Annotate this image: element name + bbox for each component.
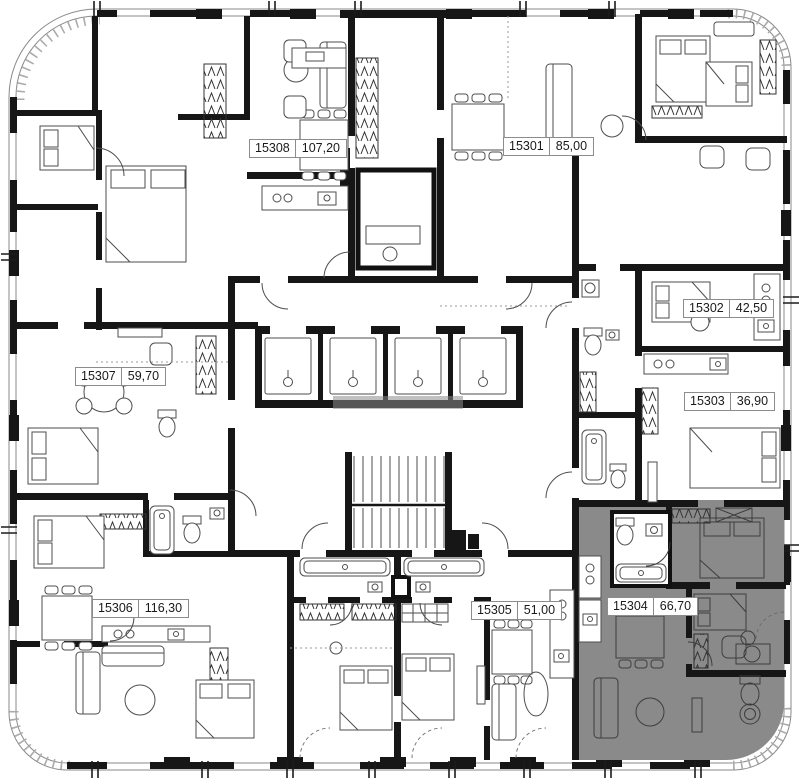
floor-plan: 15308 107,20 15301 85,00 15302 42,50 153…	[0, 0, 800, 779]
apartment-tag-15308[interactable]: 15308 107,20	[249, 139, 347, 158]
apartment-number: 15302	[684, 300, 730, 317]
apartment-tag-15305[interactable]: 15305 51,00	[471, 601, 562, 620]
apartment-number: 15301	[504, 138, 550, 155]
apartment-area: 116,30	[139, 600, 188, 617]
stairs-icon	[352, 456, 445, 548]
apartment-area: 66,70	[654, 598, 697, 615]
elevator-car-icon	[265, 338, 311, 394]
apartment-area: 42,50	[730, 300, 773, 317]
apartment-number: 15303	[685, 393, 731, 410]
apartment-tag-15306[interactable]: 15306 116,30	[92, 599, 189, 618]
apartment-tag-15304[interactable]: 15304 66,70	[607, 597, 698, 616]
apartment-tag-15307[interactable]: 15307 59,70	[75, 367, 166, 386]
apartment-number: 15304	[608, 598, 654, 615]
apartment-number: 15308	[250, 140, 296, 157]
elevator-car-icon	[460, 338, 506, 394]
apartment-tag-15302[interactable]: 15302 42,50	[683, 299, 774, 318]
elevator-car-icon	[330, 338, 376, 394]
apartment-number: 15306	[93, 600, 139, 617]
elevator-car-icon	[395, 338, 441, 394]
apartment-number: 15305	[472, 602, 518, 619]
apartment-tag-15301[interactable]: 15301 85,00	[503, 137, 594, 156]
closet-grid-icon	[402, 604, 448, 622]
apartment-area: 51,00	[518, 602, 561, 619]
apartment-15304-region[interactable]	[578, 505, 784, 760]
watermark	[333, 396, 463, 409]
apartment-tag-15303[interactable]: 15303 36,90	[684, 392, 775, 411]
apartment-number: 15307	[76, 368, 122, 385]
apartment-area: 107,20	[296, 140, 346, 157]
apartment-area: 59,70	[122, 368, 165, 385]
apartment-area: 85,00	[550, 138, 593, 155]
floor-plan-canvas	[0, 0, 800, 779]
apartment-area: 36,90	[731, 393, 774, 410]
